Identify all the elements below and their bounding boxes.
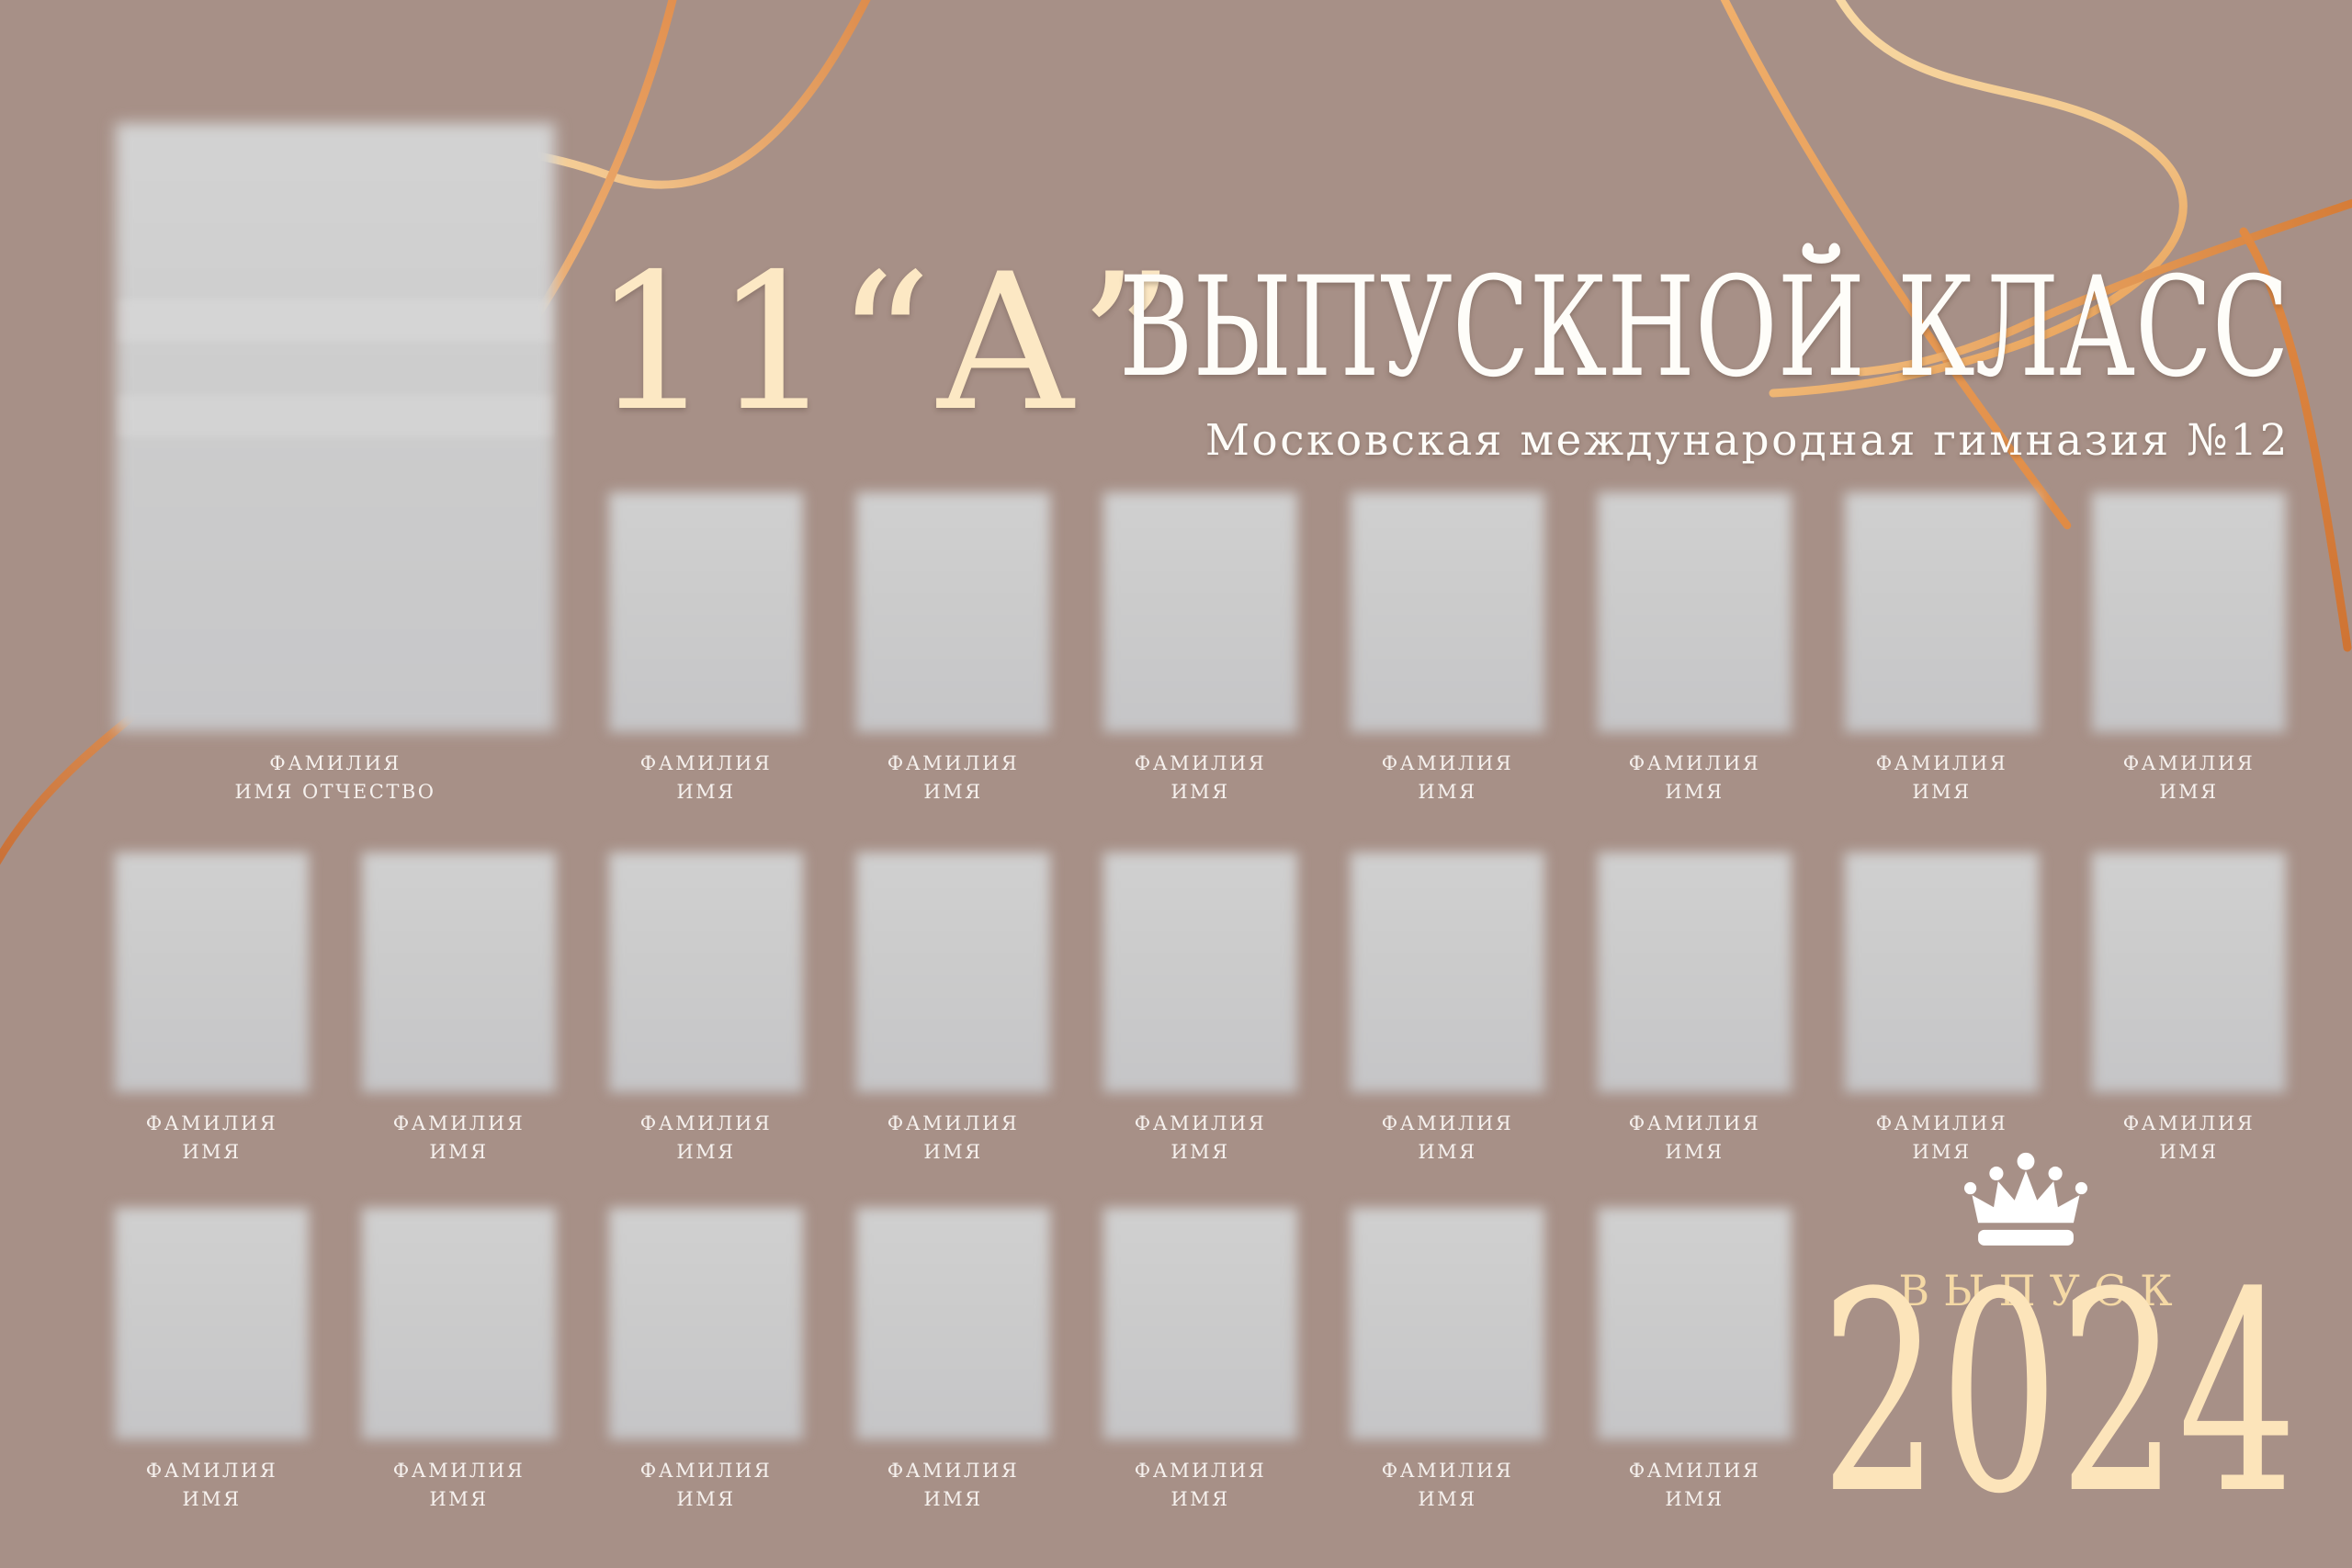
student-surname: ФАМИЛИЯ — [1382, 750, 1513, 778]
student-photo-placeholder — [1595, 490, 1794, 735]
student-caption: ФАМИЛИЯ ИМЯ — [393, 1457, 525, 1514]
student-caption: ФАМИЛИЯ ИМЯ — [1629, 1110, 1760, 1167]
student-photo-placeholder — [1101, 490, 1300, 735]
student-cell: ФАМИЛИЯ ИМЯ — [359, 1205, 559, 1514]
student-photo-placeholder — [1842, 490, 2041, 735]
placeholder-highlight-band — [118, 395, 553, 437]
school-subtitle: Московская международная гимназия №12 — [686, 417, 2290, 465]
student-name: ИМЯ — [1135, 1485, 1266, 1514]
student-name: ИМЯ — [1629, 778, 1760, 807]
student-photo-placeholder — [112, 850, 311, 1095]
student-surname: ФАМИЛИЯ — [888, 1457, 1019, 1485]
student-cell: ФАМИЛИЯ ИМЯ — [1101, 490, 1300, 807]
student-cell: ФАМИЛИЯ ИМЯ — [2089, 490, 2289, 807]
student-photo-placeholder — [854, 850, 1053, 1095]
student-surname: ФАМИЛИЯ — [1629, 1457, 1760, 1485]
student-name: ИМЯ — [1629, 1485, 1760, 1514]
student-surname: ФАМИЛИЯ — [1135, 1110, 1266, 1138]
student-cell: ФАМИЛИЯ ИМЯ — [359, 850, 559, 1167]
student-cell: ФАМИЛИЯ ИМЯ — [1101, 850, 1300, 1167]
student-photo-placeholder — [1348, 490, 1547, 735]
student-photo-placeholder — [112, 1205, 311, 1442]
student-caption: ФАМИЛИЯ ИМЯ — [640, 1110, 772, 1167]
featured-caption: ФАМИЛИЯ ИМЯ ОТЧЕСТВО — [112, 750, 559, 807]
student-surname: ФАМИЛИЯ — [888, 1110, 1019, 1138]
student-photo-placeholder — [2089, 490, 2289, 735]
student-photo-placeholder — [606, 490, 806, 735]
student-photo-placeholder — [1595, 1205, 1794, 1442]
student-caption: ФАМИЛИЯ ИМЯ — [1382, 1110, 1513, 1167]
student-surname: ФАМИЛИЯ — [1876, 750, 2007, 778]
student-name: ИМЯ — [888, 1138, 1019, 1167]
student-caption: ФАМИЛИЯ ИМЯ — [640, 750, 772, 807]
poster-canvas: ФАМИЛИЯ ИМЯ ОТЧЕСТВО 11“А” ВЫПУСКНОЙ КЛА… — [0, 0, 2352, 1568]
student-surname: ФАМИЛИЯ — [640, 750, 772, 778]
student-cell: ФАМИЛИЯ ИМЯ — [1842, 850, 2041, 1167]
student-surname: ФАМИЛИЯ — [640, 1110, 772, 1138]
student-name: ИМЯ — [2123, 1138, 2255, 1167]
student-caption: ФАМИЛИЯ ИМЯ — [1629, 1457, 1760, 1514]
student-caption: ФАМИЛИЯ ИМЯ — [1629, 750, 1760, 807]
student-surname: ФАМИЛИЯ — [2123, 750, 2255, 778]
student-photo-placeholder — [1842, 850, 2041, 1095]
student-photo-placeholder — [1348, 1205, 1547, 1442]
student-row-top: ФАМИЛИЯ ИМЯ ФАМИЛИЯ ИМЯ ФАМИЛИЯ ИМЯ ФАМИ… — [606, 490, 2289, 807]
student-name: ИМЯ — [640, 778, 772, 807]
student-surname: ФАМИЛИЯ — [1876, 1110, 2007, 1138]
student-name: ИМЯ — [1135, 778, 1266, 807]
student-name: ИМЯ — [1382, 778, 1513, 807]
student-surname: ФАМИЛИЯ — [1629, 750, 1760, 778]
student-surname: ФАМИЛИЯ — [1629, 1110, 1760, 1138]
student-surname: ФАМИЛИЯ — [393, 1110, 525, 1138]
student-cell: ФАМИЛИЯ ИМЯ — [606, 1205, 806, 1514]
student-surname: ФАМИЛИЯ — [1382, 1457, 1513, 1485]
student-name: ИМЯ — [1876, 778, 2007, 807]
student-surname: ФАМИЛИЯ — [1382, 1110, 1513, 1138]
student-name: ИМЯ — [1629, 1138, 1760, 1167]
student-caption: ФАМИЛИЯ ИМЯ — [1382, 1457, 1513, 1514]
student-surname: ФАМИЛИЯ — [640, 1457, 772, 1485]
placeholder-highlight-band — [118, 299, 553, 342]
student-name: ИМЯ — [640, 1138, 772, 1167]
student-photo-placeholder — [359, 850, 559, 1095]
student-surname: ФАМИЛИЯ — [2123, 1110, 2255, 1138]
student-row-middle: ФАМИЛИЯ ИМЯ ФАМИЛИЯ ИМЯ ФАМИЛИЯ ИМЯ ФАМИ… — [112, 850, 2289, 1167]
student-caption: ФАМИЛИЯ ИМЯ — [888, 1110, 1019, 1167]
student-name: ИМЯ — [2123, 778, 2255, 807]
student-photo-placeholder — [606, 850, 806, 1095]
student-photo-placeholder — [854, 490, 1053, 735]
year-label: 2024 — [1820, 1257, 2297, 1532]
student-caption: ФАМИЛИЯ ИМЯ — [1876, 750, 2007, 807]
student-cell: ФАМИЛИЯ ИМЯ — [1348, 1205, 1547, 1514]
student-name: ИМЯ — [146, 1138, 277, 1167]
student-cell: ФАМИЛИЯ ИМЯ — [1101, 1205, 1300, 1514]
student-photo-placeholder — [854, 1205, 1053, 1442]
student-cell: ФАМИЛИЯ ИМЯ — [1595, 850, 1794, 1167]
student-cell: ФАМИЛИЯ ИМЯ — [606, 490, 806, 807]
student-caption: ФАМИЛИЯ ИМЯ — [1135, 750, 1266, 807]
student-surname: ФАМИЛИЯ — [1135, 750, 1266, 778]
student-surname: ФАМИЛИЯ — [888, 750, 1019, 778]
featured-surname: ФАМИЛИЯ — [112, 750, 559, 778]
student-photo-placeholder — [1595, 850, 1794, 1095]
student-cell: ФАМИЛИЯ ИМЯ — [854, 850, 1053, 1167]
student-caption: ФАМИЛИЯ ИМЯ — [146, 1110, 277, 1167]
student-name: ИМЯ — [146, 1485, 277, 1514]
student-caption: ФАМИЛИЯ ИМЯ — [2123, 750, 2255, 807]
student-surname: ФАМИЛИЯ — [1135, 1457, 1266, 1485]
student-photo-placeholder — [359, 1205, 559, 1442]
student-caption: ФАМИЛИЯ ИМЯ — [640, 1457, 772, 1514]
student-caption: ФАМИЛИЯ ИМЯ — [1135, 1110, 1266, 1167]
student-caption: ФАМИЛИЯ ИМЯ — [1135, 1457, 1266, 1514]
student-name: ИМЯ — [888, 1485, 1019, 1514]
student-name: ИМЯ — [393, 1138, 525, 1167]
student-name: ИМЯ — [1135, 1138, 1266, 1167]
student-caption: ФАМИЛИЯ ИМЯ — [2123, 1110, 2255, 1167]
title-block: ВЫПУСКНОЙ КЛАСС Московская международная… — [686, 259, 2290, 465]
student-cell: ФАМИЛИЯ ИМЯ — [1348, 490, 1547, 807]
student-surname: ФАМИЛИЯ — [146, 1110, 277, 1138]
student-cell: ФАМИЛИЯ ИМЯ — [854, 490, 1053, 807]
student-row-bottom: ФАМИЛИЯ ИМЯ ФАМИЛИЯ ИМЯ ФАМИЛИЯ ИМЯ ФАМИ… — [112, 1205, 1794, 1514]
student-surname: ФАМИЛИЯ — [146, 1457, 277, 1485]
student-cell: ФАМИЛИЯ ИМЯ — [1595, 1205, 1794, 1514]
featured-photo-cell: ФАМИЛИЯ ИМЯ ОТЧЕСТВО — [112, 119, 559, 807]
student-photo-placeholder — [606, 1205, 806, 1442]
student-caption: ФАМИЛИЯ ИМЯ — [888, 1457, 1019, 1514]
student-cell: ФАМИЛИЯ ИМЯ — [854, 1205, 1053, 1514]
student-name: ИМЯ — [393, 1485, 525, 1514]
student-caption: ФАМИЛИЯ ИМЯ — [146, 1457, 277, 1514]
student-cell: ФАМИЛИЯ ИМЯ — [1842, 490, 2041, 807]
student-cell: ФАМИЛИЯ ИМЯ — [112, 1205, 311, 1514]
student-cell: ФАМИЛИЯ ИМЯ — [606, 850, 806, 1167]
student-photo-placeholder — [1348, 850, 1547, 1095]
student-cell: ФАМИЛИЯ ИМЯ — [112, 850, 311, 1167]
student-name: ИМЯ — [640, 1485, 772, 1514]
student-name: ИМЯ — [888, 778, 1019, 807]
student-cell: ФАМИЛИЯ ИМЯ — [2089, 850, 2289, 1167]
featured-name-patronymic: ИМЯ ОТЧЕСТВО — [112, 778, 559, 807]
student-name: ИМЯ — [1382, 1138, 1513, 1167]
page-title: ВЫПУСКНОЙ КЛАСС — [1119, 259, 2290, 397]
featured-photo-placeholder — [112, 119, 559, 735]
student-caption: ФАМИЛИЯ ИМЯ — [888, 750, 1019, 807]
student-photo-placeholder — [1101, 1205, 1300, 1442]
student-surname: ФАМИЛИЯ — [393, 1457, 525, 1485]
student-cell: ФАМИЛИЯ ИМЯ — [1595, 490, 1794, 807]
student-name: ИМЯ — [1382, 1485, 1513, 1514]
student-cell: ФАМИЛИЯ ИМЯ — [1348, 850, 1547, 1167]
student-caption: ФАМИЛИЯ ИМЯ — [393, 1110, 525, 1167]
student-caption: ФАМИЛИЯ ИМЯ — [1382, 750, 1513, 807]
student-photo-placeholder — [2089, 850, 2289, 1095]
student-photo-placeholder — [1101, 850, 1300, 1095]
